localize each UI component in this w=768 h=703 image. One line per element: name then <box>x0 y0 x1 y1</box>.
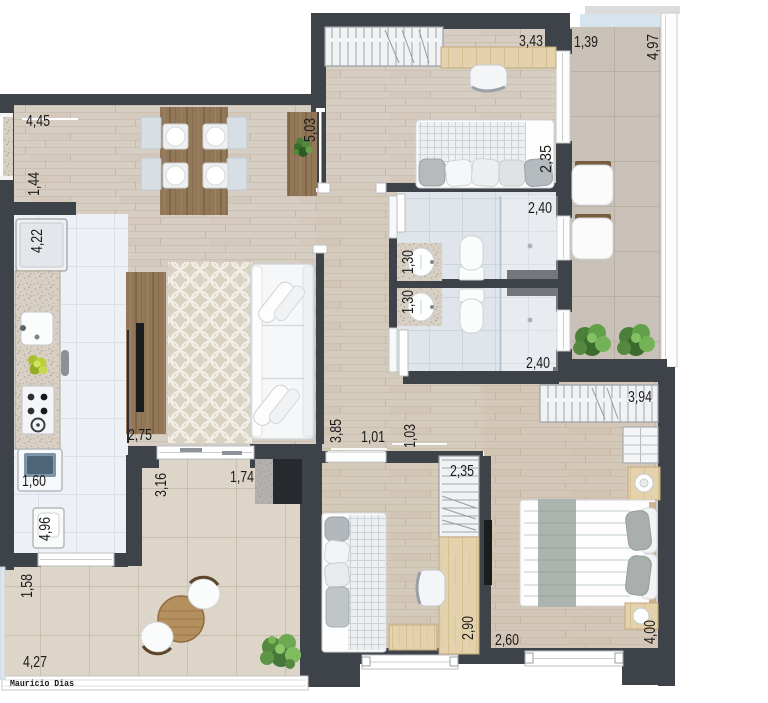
svg-text:4,97: 4,97 <box>645 34 662 60</box>
svg-text:3,94: 3,94 <box>628 389 652 406</box>
svg-text:2,90: 2,90 <box>460 616 477 640</box>
svg-text:1,39: 1,39 <box>574 34 598 51</box>
svg-text:1,58: 1,58 <box>19 574 36 598</box>
svg-text:4,45: 4,45 <box>26 113 50 130</box>
svg-text:1,30: 1,30 <box>400 250 417 274</box>
svg-text:1,44: 1,44 <box>26 172 43 196</box>
svg-text:2,60: 2,60 <box>495 632 519 649</box>
svg-text:1,03: 1,03 <box>402 424 419 448</box>
svg-text:1,60: 1,60 <box>22 473 46 490</box>
svg-text:2,40: 2,40 <box>528 200 552 217</box>
svg-text:1,01: 1,01 <box>361 429 385 446</box>
svg-text:4,96: 4,96 <box>37 517 54 541</box>
svg-text:4,22: 4,22 <box>29 229 46 253</box>
svg-text:4,00: 4,00 <box>642 620 659 644</box>
svg-text:2,35: 2,35 <box>538 145 555 173</box>
svg-text:4,27: 4,27 <box>23 654 47 671</box>
svg-text:3,16: 3,16 <box>153 473 170 497</box>
svg-text:5,03: 5,03 <box>302 118 319 142</box>
svg-text:2,35: 2,35 <box>450 463 474 480</box>
svg-text:2,40: 2,40 <box>526 355 550 372</box>
svg-text:1,74: 1,74 <box>230 469 254 486</box>
svg-text:3,85: 3,85 <box>328 419 345 443</box>
svg-text:2,75: 2,75 <box>128 427 152 444</box>
svg-text:1,30: 1,30 <box>400 290 417 314</box>
svg-text:Mauricio Dias: Mauricio Dias <box>10 678 74 689</box>
svg-text:3,43: 3,43 <box>519 33 543 50</box>
